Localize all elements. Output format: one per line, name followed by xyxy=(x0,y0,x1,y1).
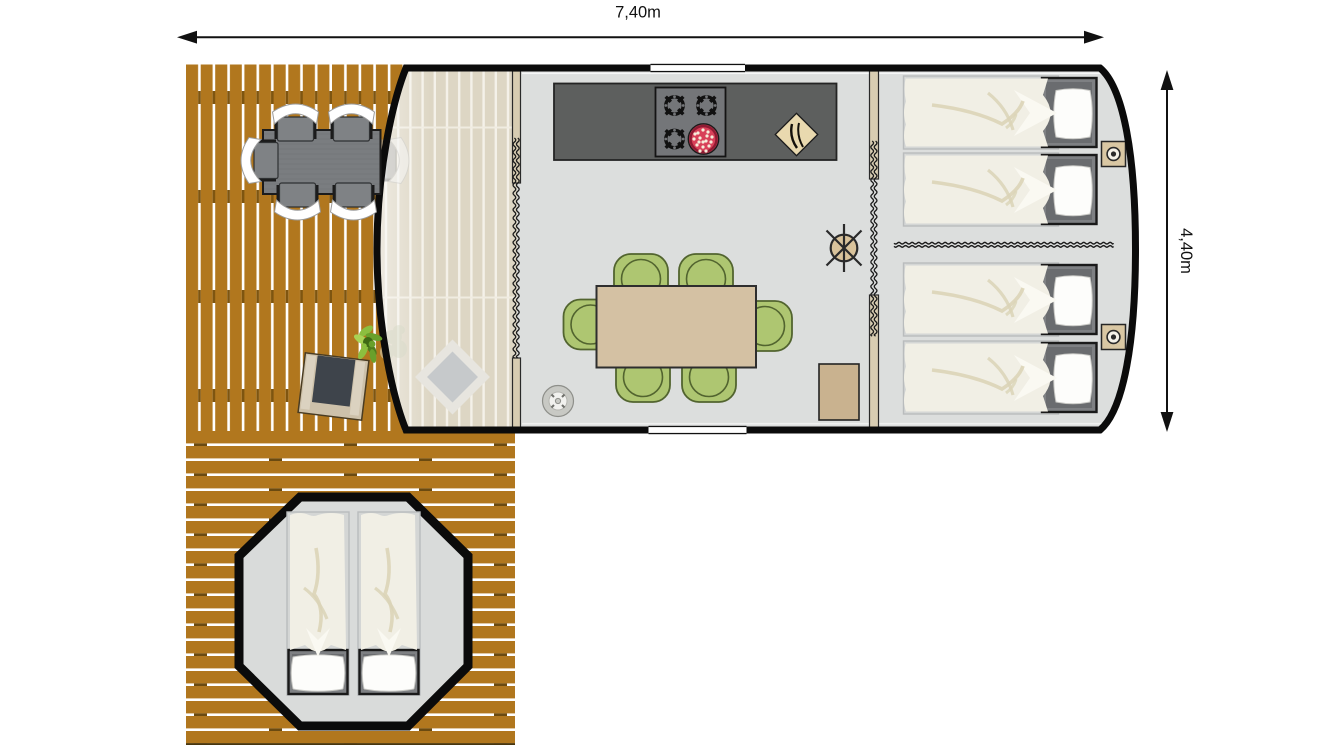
svg-text:4,40m: 4,40m xyxy=(1177,228,1195,274)
svg-text:7,40m: 7,40m xyxy=(615,4,661,22)
